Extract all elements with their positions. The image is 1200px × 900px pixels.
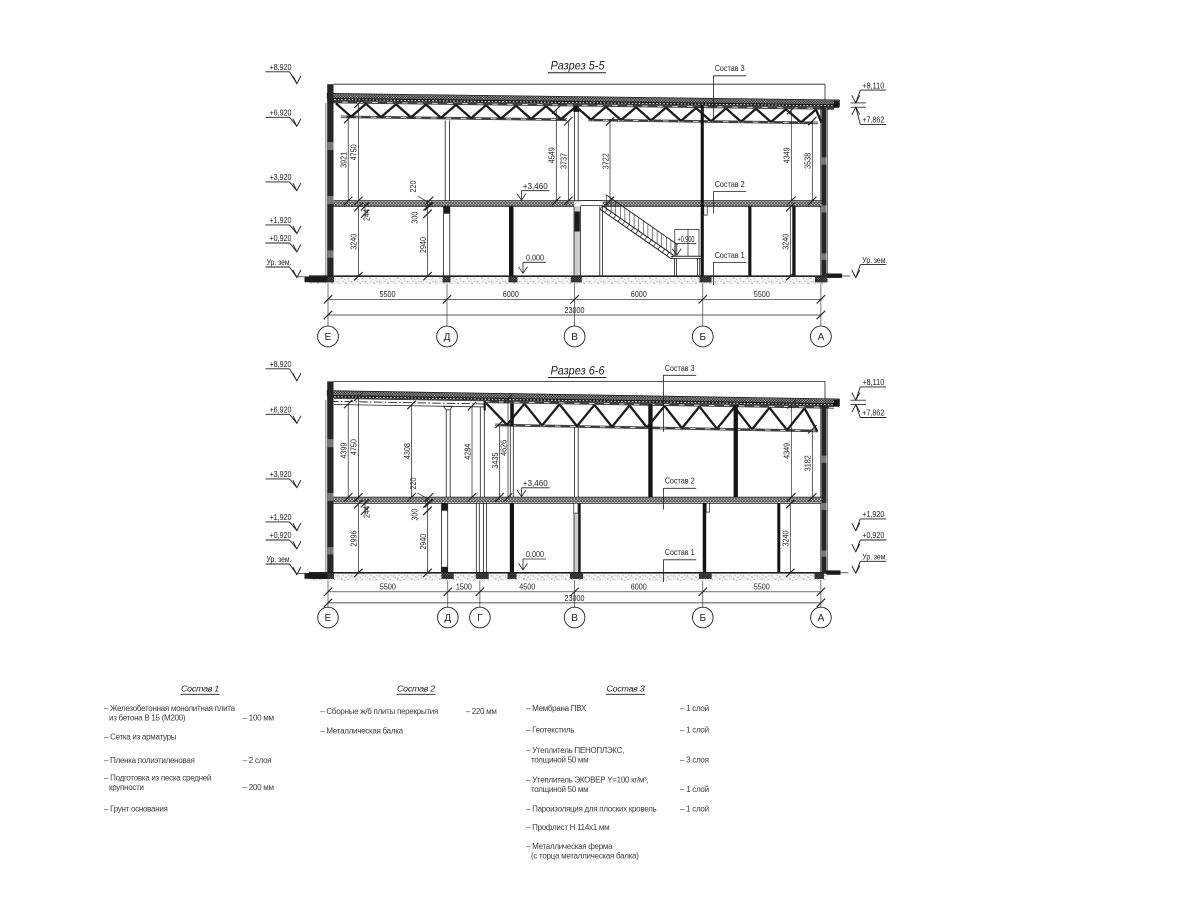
svg-text:5500: 5500: [380, 290, 396, 299]
svg-text:Е: Е: [325, 332, 332, 343]
svg-text:+8,110: +8,110: [862, 81, 884, 90]
svg-text:+0,920: +0,920: [270, 531, 292, 540]
svg-text:+3,920: +3,920: [270, 173, 292, 182]
svg-text:+1,920: +1,920: [270, 513, 292, 522]
svg-text:– Мембрана ПВХ: – Мембрана ПВХ: [526, 704, 587, 713]
svg-text:+6,920: +6,920: [270, 109, 292, 118]
svg-text:– Утеплитель ЭКОВЕР Y=100 кг/м: – Утеплитель ЭКОВЕР Y=100 кг/м³,: [526, 776, 649, 785]
svg-text:Ур. зем.: Ур. зем.: [267, 555, 292, 564]
svg-text:5500: 5500: [754, 583, 770, 592]
svg-text:+3,460: +3,460: [523, 182, 549, 191]
svg-text:220: 220: [409, 180, 418, 192]
svg-text:– Металлическая балка: – Металлическая балка: [320, 727, 403, 736]
svg-text:5500: 5500: [754, 290, 770, 299]
svg-text:– Утеплитель ПЕНОПЛЭКС,: – Утеплитель ПЕНОПЛЭКС,: [526, 746, 624, 755]
svg-text:– 220 мм: – 220 мм: [466, 707, 497, 716]
svg-text:3240: 3240: [349, 233, 359, 249]
svg-text:+8,110: +8,110: [862, 378, 884, 387]
svg-text:2940: 2940: [418, 237, 428, 253]
svg-text:+8,920: +8,920: [270, 360, 292, 369]
svg-text:толщиной 50 мм: толщиной 50 мм: [531, 755, 588, 764]
svg-text:– 1 слой: – 1 слой: [680, 785, 709, 794]
svg-text:Ур. зем.: Ур. зем.: [267, 258, 292, 267]
svg-text:Состав 3: Состав 3: [607, 684, 646, 694]
svg-text:Состав 3: Состав 3: [715, 64, 745, 73]
svg-text:В: В: [571, 332, 578, 343]
svg-text:3240: 3240: [781, 530, 791, 546]
svg-text:3921: 3921: [339, 152, 349, 168]
svg-text:4549: 4549: [547, 147, 557, 163]
svg-text:А: А: [818, 613, 825, 624]
svg-text:23000: 23000: [565, 594, 585, 603]
svg-text:– Металлическая ферма: – Металлическая ферма: [526, 842, 613, 851]
svg-text:– Пленка полиэтиленовая: – Пленка полиэтиленовая: [104, 756, 195, 765]
svg-text:+0,900: +0,900: [678, 235, 695, 244]
svg-text:+8,920: +8,920: [270, 63, 292, 72]
svg-text:4399: 4399: [339, 442, 349, 458]
svg-text:3737: 3737: [559, 153, 569, 169]
svg-text:+0,920: +0,920: [270, 234, 292, 243]
svg-text:Б: Б: [700, 332, 707, 343]
svg-text:+3,920: +3,920: [270, 470, 292, 479]
svg-text:3722: 3722: [600, 153, 610, 169]
svg-text:Состав 1: Состав 1: [181, 684, 220, 694]
svg-text:+1,920: +1,920: [270, 216, 292, 225]
svg-text:– 1 слой: – 1 слой: [680, 726, 709, 735]
svg-text:3538: 3538: [803, 153, 813, 169]
svg-text:– Грунт основания: – Грунт основания: [104, 805, 168, 814]
svg-text:+0,920: +0,920: [862, 531, 884, 540]
svg-text:4284: 4284: [462, 443, 472, 459]
svg-text:– 3 слоя: – 3 слоя: [680, 755, 709, 764]
svg-text:4500: 4500: [519, 583, 535, 592]
svg-text:– 100 мм: – 100 мм: [243, 714, 274, 723]
svg-text:2996: 2996: [349, 530, 359, 546]
svg-text:300: 300: [411, 211, 420, 223]
svg-text:(с торца металлическая балка): (с торца металлическая балка): [531, 852, 639, 861]
svg-text:Е: Е: [325, 613, 332, 624]
svg-text:Ур. зем.: Ур. зем.: [862, 553, 887, 562]
svg-text:5500: 5500: [380, 583, 396, 592]
svg-text:4750: 4750: [349, 144, 359, 160]
svg-text:Д: Д: [444, 332, 451, 343]
svg-text:– Геотекстиль: – Геотекстиль: [526, 726, 574, 735]
svg-text:Разрез 5-5: Разрез 5-5: [551, 61, 606, 73]
svg-text:А: А: [818, 332, 825, 343]
svg-text:3182: 3182: [803, 455, 813, 471]
svg-text:– 2 слоя: – 2 слоя: [243, 756, 272, 765]
svg-text:4626: 4626: [498, 440, 508, 456]
svg-text:3240: 3240: [781, 233, 791, 249]
svg-text:23000: 23000: [565, 306, 585, 315]
svg-text:– 1 слой: – 1 слой: [680, 805, 709, 814]
svg-text:Состав 1: Состав 1: [665, 548, 695, 557]
svg-text:Состав 2: Состав 2: [715, 180, 745, 189]
svg-text:Д: Д: [444, 613, 451, 624]
svg-text:+3,460: +3,460: [523, 479, 549, 488]
svg-text:6000: 6000: [631, 290, 647, 299]
svg-text:Состав 3: Состав 3: [665, 364, 695, 373]
svg-text:Ур. зем.: Ур. зем.: [862, 256, 887, 265]
svg-text:толщиной 50 мм: толщиной 50 мм: [531, 785, 588, 794]
svg-text:6000: 6000: [631, 583, 647, 592]
svg-text:Состав 1: Состав 1: [715, 251, 745, 260]
svg-text:Б: Б: [700, 613, 707, 624]
svg-text:– Железобетонная монолитная п: – Железобетонная монолитная плита: [104, 704, 236, 713]
svg-text:из бетона В 15 (М200): из бетона В 15 (М200): [109, 714, 186, 723]
svg-text:Г: Г: [477, 613, 483, 624]
svg-text:0,000: 0,000: [526, 550, 544, 559]
svg-text:4349: 4349: [782, 443, 792, 459]
svg-text:+7,862: +7,862: [862, 116, 884, 125]
svg-text:– Сетка из арматуры: – Сетка из арматуры: [104, 733, 177, 742]
svg-text:Разрез 6-6: Разрез 6-6: [551, 365, 606, 377]
svg-text:220: 220: [409, 477, 418, 489]
svg-text:– 200 мм: – 200 мм: [243, 783, 274, 792]
svg-text:6000: 6000: [503, 290, 519, 299]
svg-text:4308: 4308: [402, 443, 412, 459]
svg-text:– Профлист Н 114х1 мм: – Профлист Н 114х1 мм: [526, 823, 609, 832]
svg-text:2940: 2940: [418, 534, 428, 550]
svg-text:В: В: [571, 613, 578, 624]
svg-text:1500: 1500: [456, 583, 472, 592]
svg-text:– Подготовка из песка средней: – Подготовка из песка средней: [104, 773, 211, 782]
svg-text:4750: 4750: [349, 439, 359, 455]
svg-text:Состав 2: Состав 2: [397, 684, 436, 694]
svg-text:0,000: 0,000: [526, 254, 544, 263]
svg-text:– 1 слой: – 1 слой: [680, 704, 709, 713]
svg-text:– Сборные ж/б плиты перекрытия: – Сборные ж/б плиты перекрытия: [320, 707, 438, 716]
svg-text:4349: 4349: [782, 147, 792, 163]
svg-text:крупности: крупности: [109, 783, 144, 792]
svg-text:Состав 2: Состав 2: [665, 477, 695, 486]
svg-text:– Пароизоляция для плоских кро: – Пароизоляция для плоских кровель: [526, 805, 656, 814]
svg-text:+7,862: +7,862: [862, 409, 884, 418]
svg-text:+1,920: +1,920: [862, 510, 884, 519]
svg-text:300: 300: [411, 508, 420, 520]
svg-text:+6,920: +6,920: [270, 406, 292, 415]
